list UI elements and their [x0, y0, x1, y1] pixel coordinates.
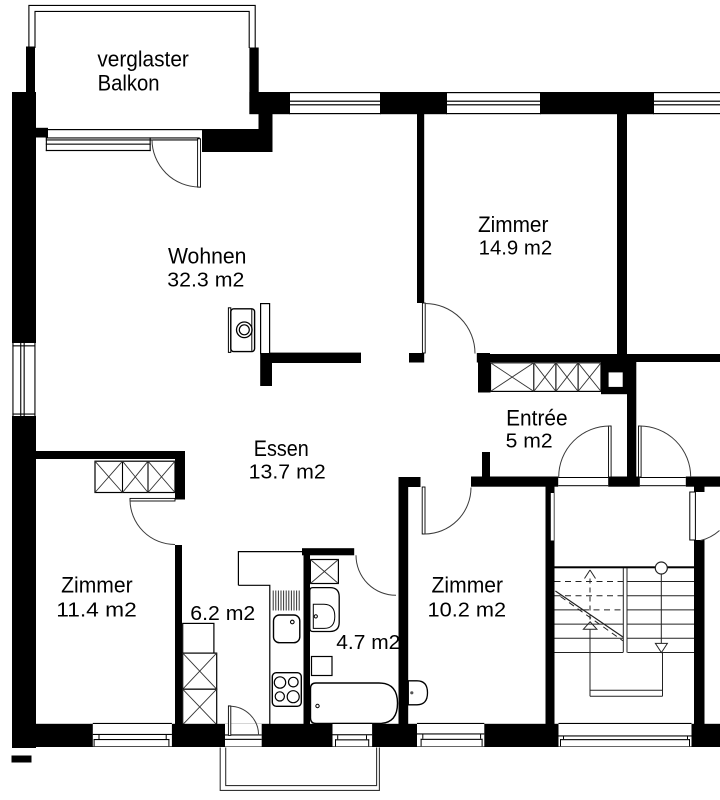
svg-text:6.2 m2: 6.2 m2 — [190, 603, 255, 625]
svg-text:14.9 m2: 14.9 m2 — [479, 237, 553, 259]
svg-text:Balkon: Balkon — [98, 70, 160, 95]
svg-text:Zimmer: Zimmer — [478, 212, 549, 237]
svg-text:verglaster: verglaster — [97, 47, 189, 72]
svg-text:Entrée: Entrée — [506, 406, 568, 431]
svg-text:5 m2: 5 m2 — [506, 430, 553, 452]
svg-text:Zimmer: Zimmer — [432, 573, 504, 598]
svg-text:32.3 m2: 32.3 m2 — [167, 269, 244, 291]
svg-text:4.7 m2: 4.7 m2 — [336, 632, 400, 654]
svg-text:Zimmer: Zimmer — [61, 573, 133, 598]
svg-text:11.4 m2: 11.4 m2 — [56, 599, 137, 621]
svg-text:Wohnen: Wohnen — [168, 244, 247, 269]
svg-text:10.2 m2: 10.2 m2 — [428, 599, 507, 621]
svg-text:Essen: Essen — [254, 436, 309, 461]
svg-text:13.7 m2: 13.7 m2 — [249, 462, 326, 484]
